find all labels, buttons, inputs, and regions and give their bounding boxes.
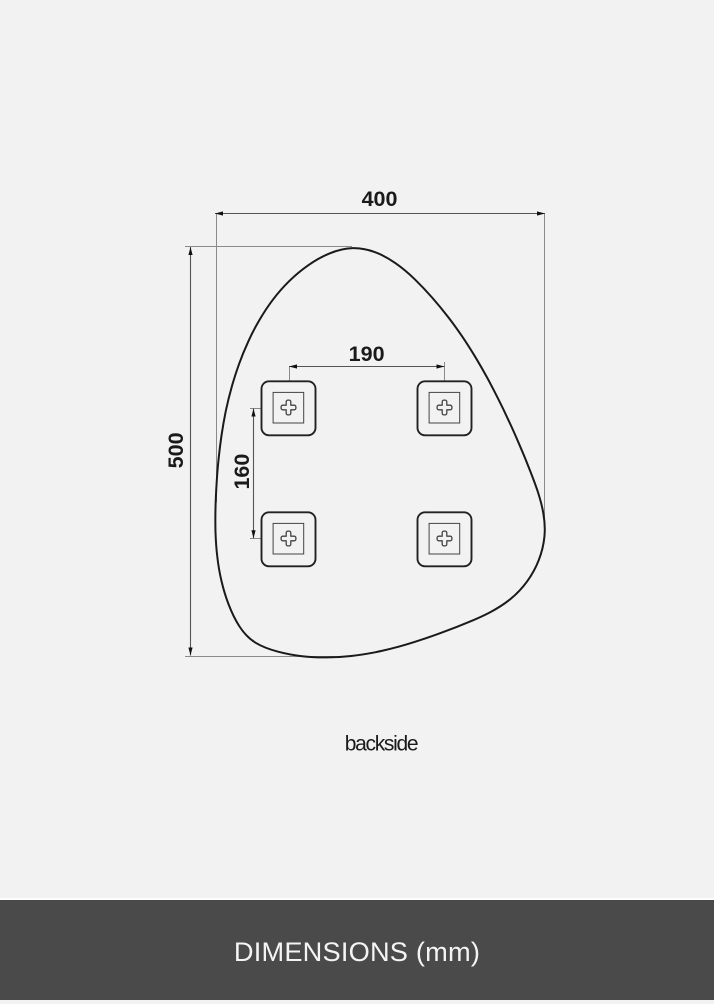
svg-text:500: 500 [164, 432, 188, 468]
svg-text:backside: backside [345, 733, 418, 756]
svg-text:400: 400 [362, 187, 398, 211]
svg-text:160: 160 [230, 454, 254, 490]
svg-text:190: 190 [349, 342, 385, 366]
